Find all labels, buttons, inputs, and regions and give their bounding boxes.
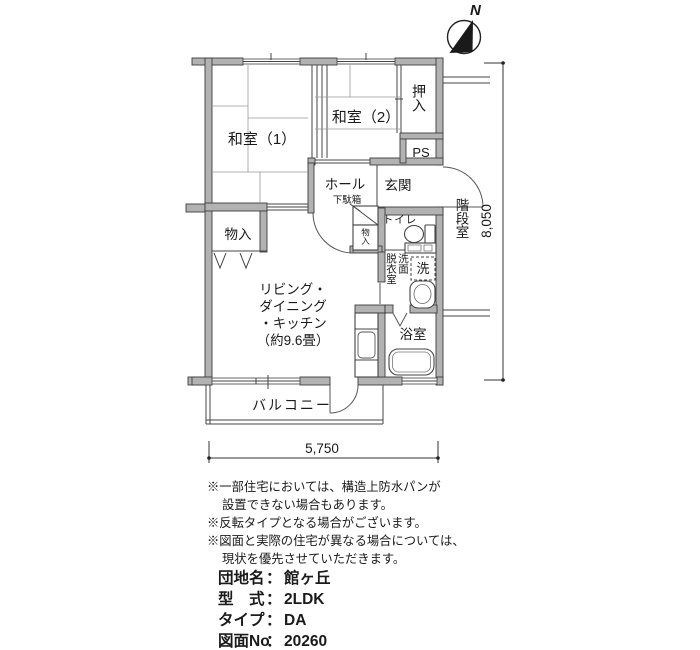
info-row-drawing-no: 図面No ： 20260 [218,632,327,650]
room-label-ldk: リビング・ ダイニング ・キッチン （約9.6畳） [257,282,330,348]
dimension-width: 5,750 [305,441,339,456]
svg-text:：: ： [266,570,282,587]
shoe-box [350,204,378,225]
kitchen-counter [355,313,378,377]
room-label-stairwell: 階段室 [454,198,470,239]
room-label-closet: 物入 [225,227,252,242]
room-label-balcony: バルコニー [252,397,332,413]
compass-north-label: N [470,2,482,19]
svg-text:（約9.6畳）: （約9.6畳） [257,333,330,348]
svg-text:型 式: 型 式 [218,589,265,608]
svg-text:ダイニング: ダイニング [259,299,327,314]
room-label-oshiire: 押入 [411,84,427,112]
svg-text:：: ： [266,591,282,608]
balcony-door-arc [330,385,358,413]
note-line: 設置できない場合もあります。 [222,497,393,512]
closet-hangers [212,251,267,268]
stairwell-lines [443,77,490,316]
room-label-ps: PS [412,145,430,160]
room-label-hall-closet: 物入 [361,227,371,245]
note-line: ※図面と実際の住宅が異なる場合については、 [207,533,465,548]
hall-ldk-door-arc [313,213,353,253]
room-label-washitsu1: 和室（1） [228,131,296,148]
svg-text:DA: DA [284,612,306,629]
room-label-dressing-room: 脱衣室 [385,252,397,284]
bathtub [389,349,434,375]
svg-text:・キッチン: ・キッチン [259,316,327,331]
room-label-washstand: 洗面 [397,253,409,275]
svg-text:：: ： [266,633,282,650]
toilet-fixture [405,225,436,243]
fusuma-partition [312,65,327,158]
notes: ※一部住宅においては、構造上防水パンが 設置できない場合もあります。 ※反転タイ… [207,479,465,566]
room-label-washitsu2: 和室（2） [332,109,400,126]
room-label-genkan: 玄関 [385,177,412,193]
floor-plan-drawing: N [0,0,700,650]
info-table: 団地名 ： 館ヶ丘 型 式 ： 2LDK タイプ ： DA 図面No ： 202… [218,568,331,650]
svg-text:リビング・: リビング・ [259,282,327,297]
svg-text:20260: 20260 [284,633,327,650]
note-line: 現状を優先させていただきます。 [222,552,405,566]
svg-text:：: ： [266,612,282,629]
vanity-counter [405,243,436,253]
svg-text:図面No: 図面No [218,632,270,650]
room-label-bath: 浴室 [400,326,427,342]
info-row-danchi: 団地名 ： 館ヶ丘 [218,568,331,587]
compass: N [448,2,483,54]
room-label-washing-machine: 洗 [416,261,429,276]
bath-folding-door [393,313,407,326]
room-label-shoe-box: 下駄箱 [333,194,362,206]
svg-text:タイプ: タイプ [218,610,265,629]
room-label-toilet: トイレ [383,214,418,226]
svg-text:館ヶ丘: 館ヶ丘 [284,568,331,587]
room-label-hall: ホール [325,177,366,192]
svg-text:2LDK: 2LDK [284,591,325,608]
note-line: ※反転タイプとなる場合がございます。 [207,515,427,530]
washbasin [410,281,435,308]
info-row-type: 型 式 ： 2LDK [218,589,325,608]
floor-plan-page: N [0,0,700,650]
dimension-height: 8,050 [479,204,494,238]
info-row-plan-type: タイプ ： DA [218,610,306,629]
note-line: ※一部住宅においては、構造上防水パンが [207,479,441,494]
svg-text:団地名: 団地名 [218,568,265,587]
